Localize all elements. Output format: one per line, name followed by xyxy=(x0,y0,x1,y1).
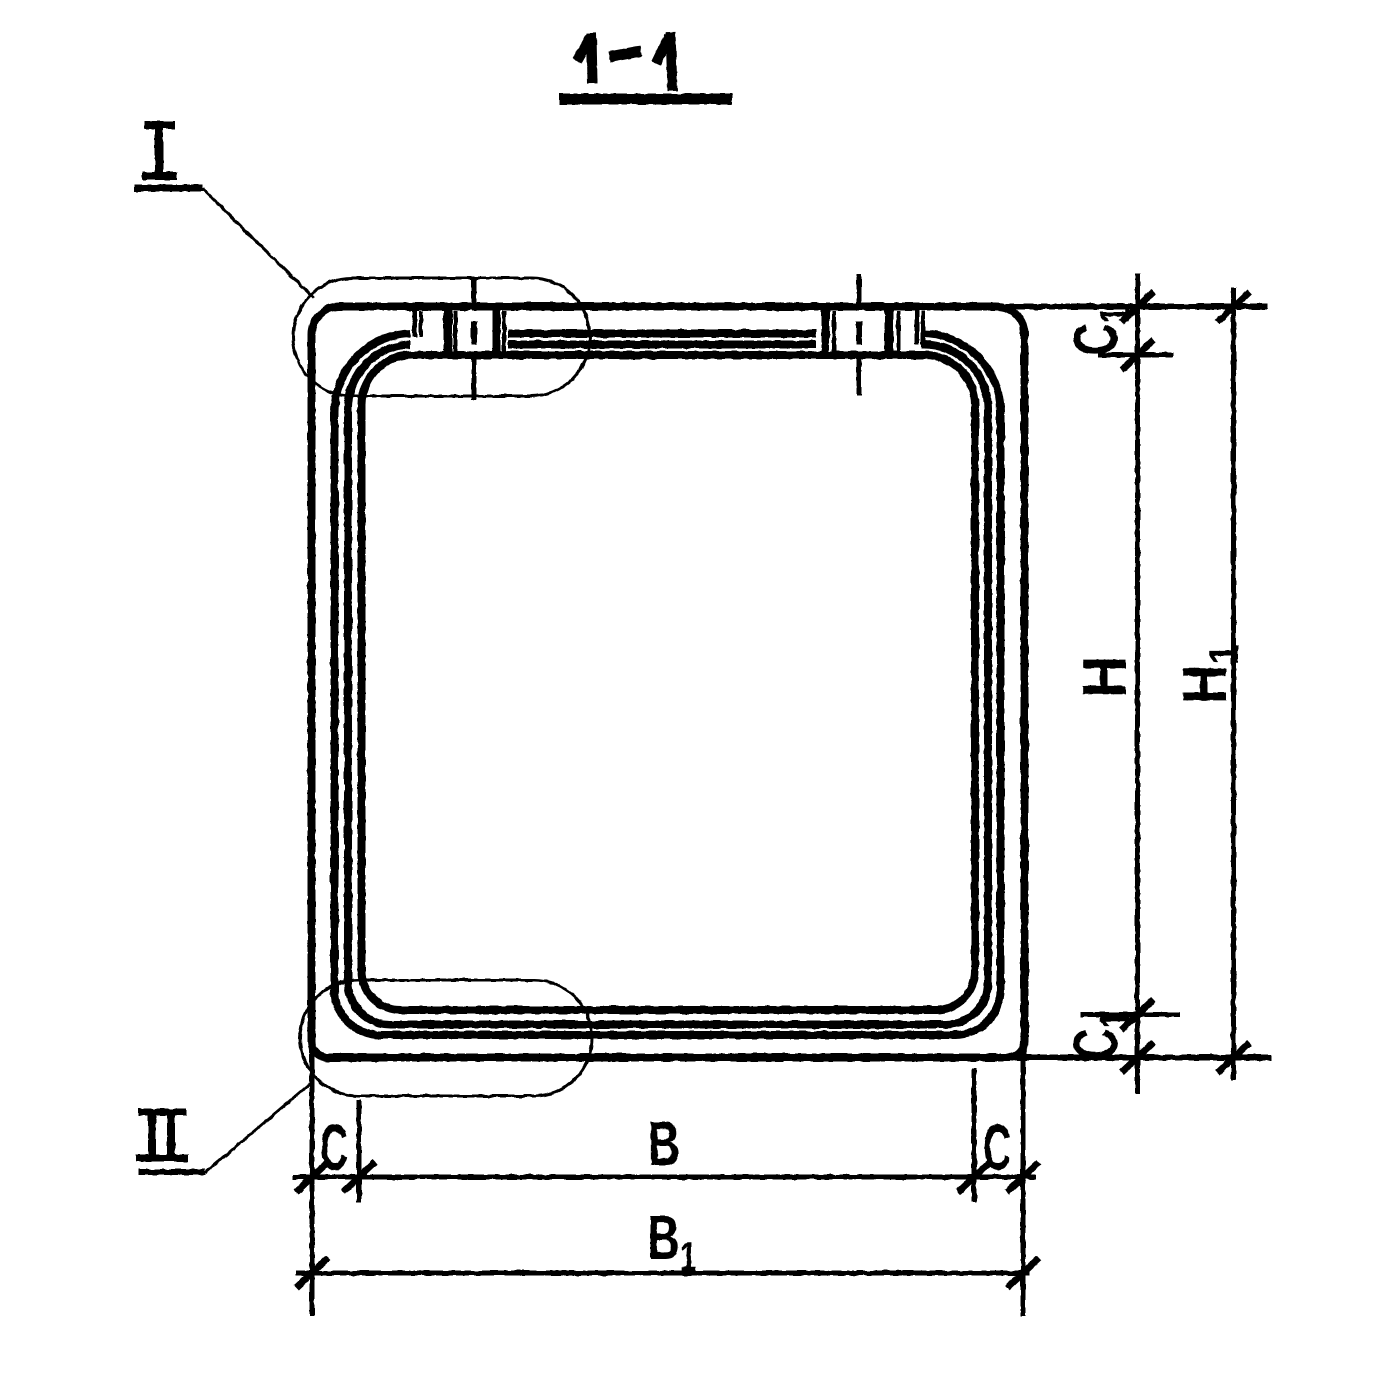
svg-text:C: C xyxy=(320,1111,348,1184)
svg-text:B: B xyxy=(648,1110,680,1179)
svg-text:C: C xyxy=(983,1111,1011,1184)
svg-text:H: H xyxy=(1070,656,1140,699)
